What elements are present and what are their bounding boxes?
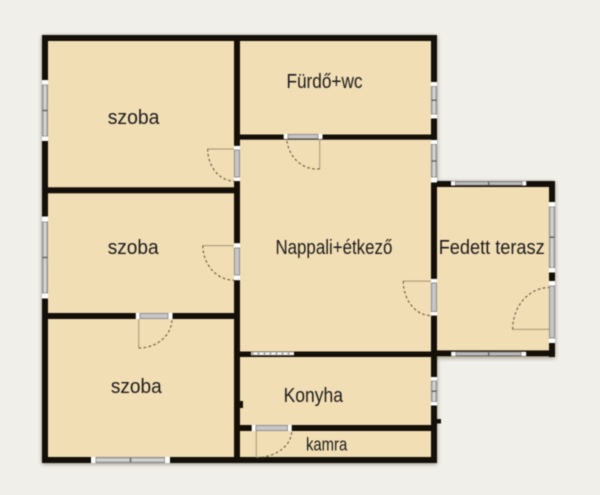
svg-text:Fedett terasz: Fedett terasz (439, 237, 545, 259)
svg-text:szoba: szoba (108, 237, 160, 259)
svg-text:Fürdő+wc: Fürdő+wc (286, 71, 362, 93)
svg-text:Nappali+étkező: Nappali+étkező (275, 237, 392, 259)
svg-text:szoba: szoba (108, 107, 161, 129)
svg-text:Konyha: Konyha (284, 385, 344, 407)
svg-text:kamra: kamra (306, 435, 348, 455)
svg-text:szoba: szoba (111, 376, 163, 398)
